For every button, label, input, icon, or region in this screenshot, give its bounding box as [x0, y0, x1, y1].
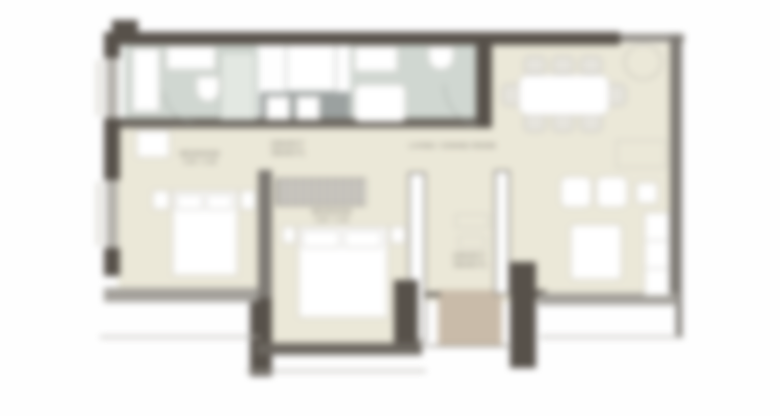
pier-bottom-center	[394, 280, 418, 350]
window-band-bottom-left	[104, 288, 258, 302]
label-master-bedroom: BEDROOM 4.05 × 3.45	[158, 150, 242, 168]
label-laundry: [object Object]	[258, 140, 318, 158]
window-left-outer-ledge-2	[96, 182, 102, 246]
window-left-2	[106, 180, 118, 248]
window-left-1	[106, 58, 118, 118]
armchair-1	[560, 176, 592, 208]
wall-top	[108, 32, 620, 45]
pillow-master-1	[176, 194, 203, 210]
pillow-master-2	[206, 194, 233, 210]
dining-chair	[580, 114, 602, 132]
wall-right-balcony-edge	[676, 304, 682, 338]
pier-bottom-right-center	[510, 262, 536, 368]
linen-closet	[132, 48, 160, 112]
tv-unit	[644, 212, 670, 296]
hall-console	[455, 214, 489, 228]
wall-bedrooms-divider	[258, 170, 272, 300]
nightstand-right	[240, 190, 256, 210]
sideboard	[616, 140, 666, 168]
nightstand-b2-left	[282, 226, 296, 244]
pillow-b2-1	[302, 230, 340, 248]
toilet-1	[196, 76, 220, 102]
label-master-bedroom-name: BEDROOM	[158, 150, 242, 159]
tv-unit-divider	[646, 268, 668, 269]
bathtub	[354, 84, 406, 122]
label-hall-text: [object Object]	[448, 252, 492, 270]
dining-chair	[580, 56, 602, 74]
vanity-sink-2	[354, 46, 398, 72]
armchair-2	[596, 176, 628, 208]
balcony-edge-bottom-right	[540, 336, 684, 338]
plant	[624, 44, 662, 80]
nightstand-left	[152, 190, 170, 210]
balcony-edge-bottom-left	[100, 336, 260, 338]
label-master-bedroom-dims: 4.05 × 3.45	[158, 159, 242, 168]
wall-right	[670, 34, 682, 304]
coffee-table	[570, 224, 622, 280]
tv-unit-divider	[646, 240, 668, 241]
floor-plan: BEDROOM 4.05 × 3.45 [object Object] LIVI…	[0, 0, 780, 416]
dryer	[296, 96, 320, 120]
balcony-edge-bottom-center	[246, 370, 426, 372]
wall-left-pier-2	[104, 118, 120, 180]
dining-chair	[552, 114, 574, 132]
floor-entry-wood	[438, 290, 502, 345]
window-left-outer-ledge	[96, 60, 102, 116]
wall-left-pier-1	[104, 32, 120, 58]
hall-shelf	[458, 236, 486, 248]
dining-chair	[524, 114, 546, 132]
wardrobe-sliding	[276, 178, 366, 206]
dining-chair	[524, 56, 546, 74]
label-bedroom-2-name: BEDROOM	[292, 208, 372, 217]
label-hall: [object Object]	[448, 252, 492, 270]
dining-table	[518, 74, 610, 116]
entry-side-wall-stub	[424, 292, 440, 297]
label-laundry-text: [object Object]	[258, 140, 318, 158]
wall-left-pier-3	[104, 248, 120, 276]
closet-column-hall	[494, 170, 510, 295]
label-living-dining: LIVING / DINING ROOM	[385, 142, 520, 151]
vanity-sink-1	[166, 46, 216, 70]
floor-plan-screenshot: BEDROOM 4.05 × 3.45 [object Object] LIVI…	[0, 0, 780, 416]
side-table	[636, 182, 658, 204]
dining-chair	[608, 84, 626, 106]
washer	[266, 96, 290, 120]
pillow-b2-2	[344, 230, 382, 248]
nightstand-b2-right	[390, 226, 406, 244]
entry-bottom-line	[424, 345, 512, 347]
toilet-2	[428, 46, 454, 70]
label-bedroom-2-dims: 3.90 × 3.35	[292, 217, 372, 226]
wall-bottom-center	[256, 343, 422, 355]
dining-chair	[552, 56, 574, 74]
label-living-dining-text: LIVING / DINING ROOM	[385, 142, 520, 151]
wall-bathroom2-right	[476, 42, 492, 128]
shower-1	[220, 52, 256, 120]
label-bedroom-2: BEDROOM 3.90 × 3.35	[292, 208, 372, 226]
